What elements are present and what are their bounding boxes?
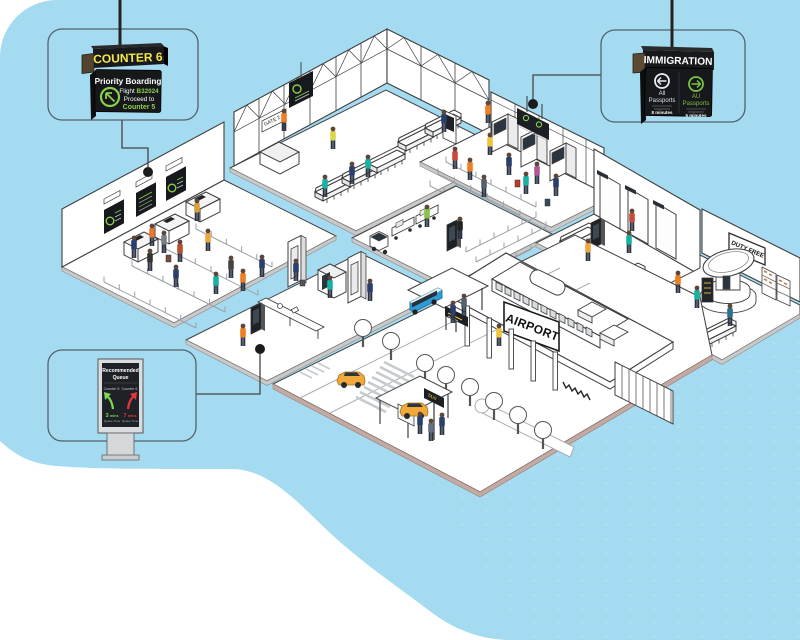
svg-text:COUNTER 6: COUNTER 6 bbox=[93, 50, 163, 66]
svg-text:Queue Time: Queue Time bbox=[122, 419, 139, 423]
svg-text:AU: AU bbox=[692, 94, 700, 100]
svg-text:8 minutes: 8 minutes bbox=[651, 110, 673, 115]
svg-text:Counter 5: Counter 5 bbox=[104, 387, 120, 391]
svg-text:Counter 6: Counter 6 bbox=[122, 387, 138, 391]
svg-text:Recommended: Recommended bbox=[102, 368, 139, 374]
svg-text:Passports: Passports bbox=[649, 98, 676, 104]
svg-text:Passports: Passports bbox=[683, 101, 710, 107]
svg-text:Queue: Queue bbox=[113, 375, 129, 381]
svg-text:IMMIGRATION: IMMIGRATION bbox=[644, 55, 713, 68]
svg-text:Proceed to: Proceed to bbox=[124, 96, 155, 103]
svg-text:Queue Time: Queue Time bbox=[104, 419, 121, 423]
svg-text:Flight B32024: Flight B32024 bbox=[119, 88, 159, 95]
svg-text:Counter 5: Counter 5 bbox=[123, 104, 156, 111]
svg-text:Priority Boarding: Priority Boarding bbox=[95, 77, 162, 86]
svg-text:5 minutes: 5 minutes bbox=[685, 113, 707, 118]
svg-text:All: All bbox=[659, 91, 666, 97]
